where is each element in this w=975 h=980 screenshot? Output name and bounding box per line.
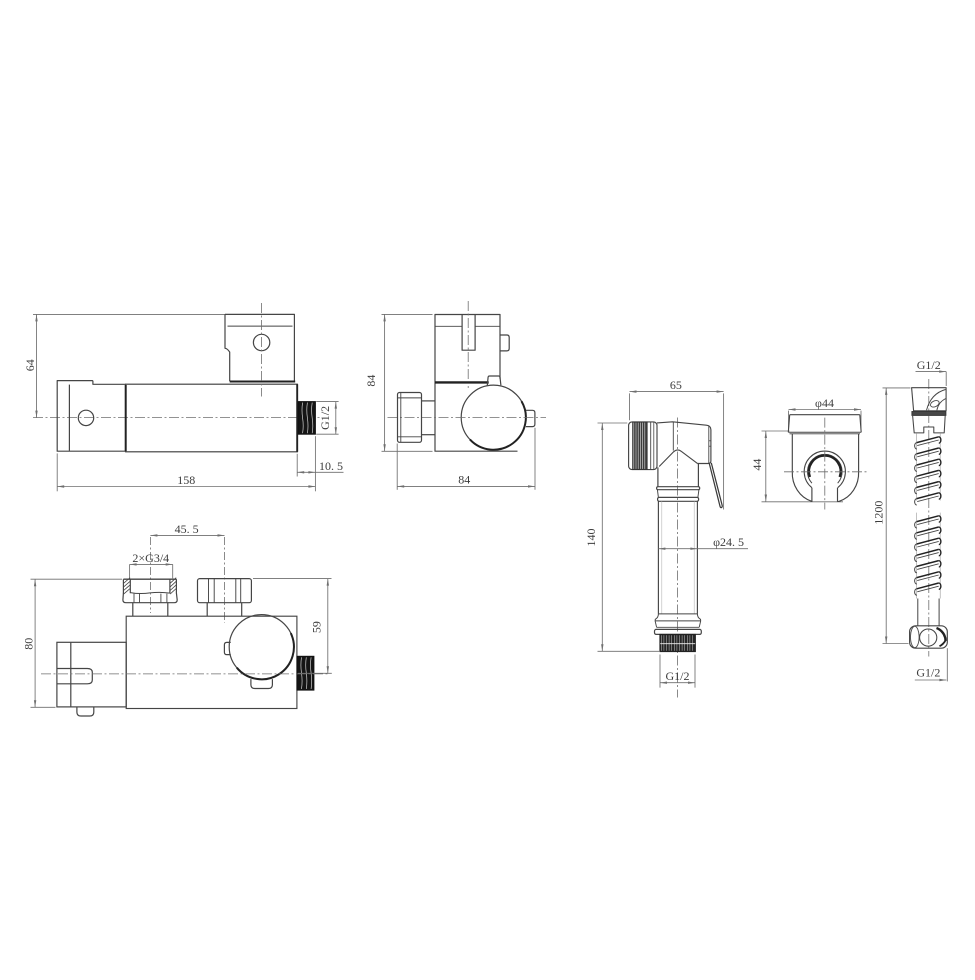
svg-text:10. 5: 10. 5 (319, 459, 343, 473)
svg-text:65: 65 (670, 378, 682, 392)
svg-text:45. 5: 45. 5 (175, 522, 199, 536)
svg-text:80: 80 (21, 638, 35, 650)
svg-text:G1/2: G1/2 (916, 665, 940, 679)
svg-text:84: 84 (458, 473, 470, 487)
svg-text:1200: 1200 (871, 501, 885, 525)
svg-text:φ24. 5: φ24. 5 (713, 535, 744, 549)
svg-text:G1/2: G1/2 (666, 669, 690, 683)
svg-text:φ44: φ44 (815, 396, 834, 410)
svg-text:2×G3/4: 2×G3/4 (132, 551, 169, 565)
svg-text:158: 158 (177, 473, 195, 487)
svg-text:G1/2: G1/2 (917, 358, 941, 372)
svg-text:59: 59 (310, 621, 324, 633)
svg-text:84: 84 (364, 375, 378, 387)
svg-text:140: 140 (584, 529, 598, 547)
svg-text:G1/2: G1/2 (318, 406, 332, 430)
svg-text:44: 44 (750, 459, 764, 471)
svg-text:64: 64 (23, 359, 37, 371)
